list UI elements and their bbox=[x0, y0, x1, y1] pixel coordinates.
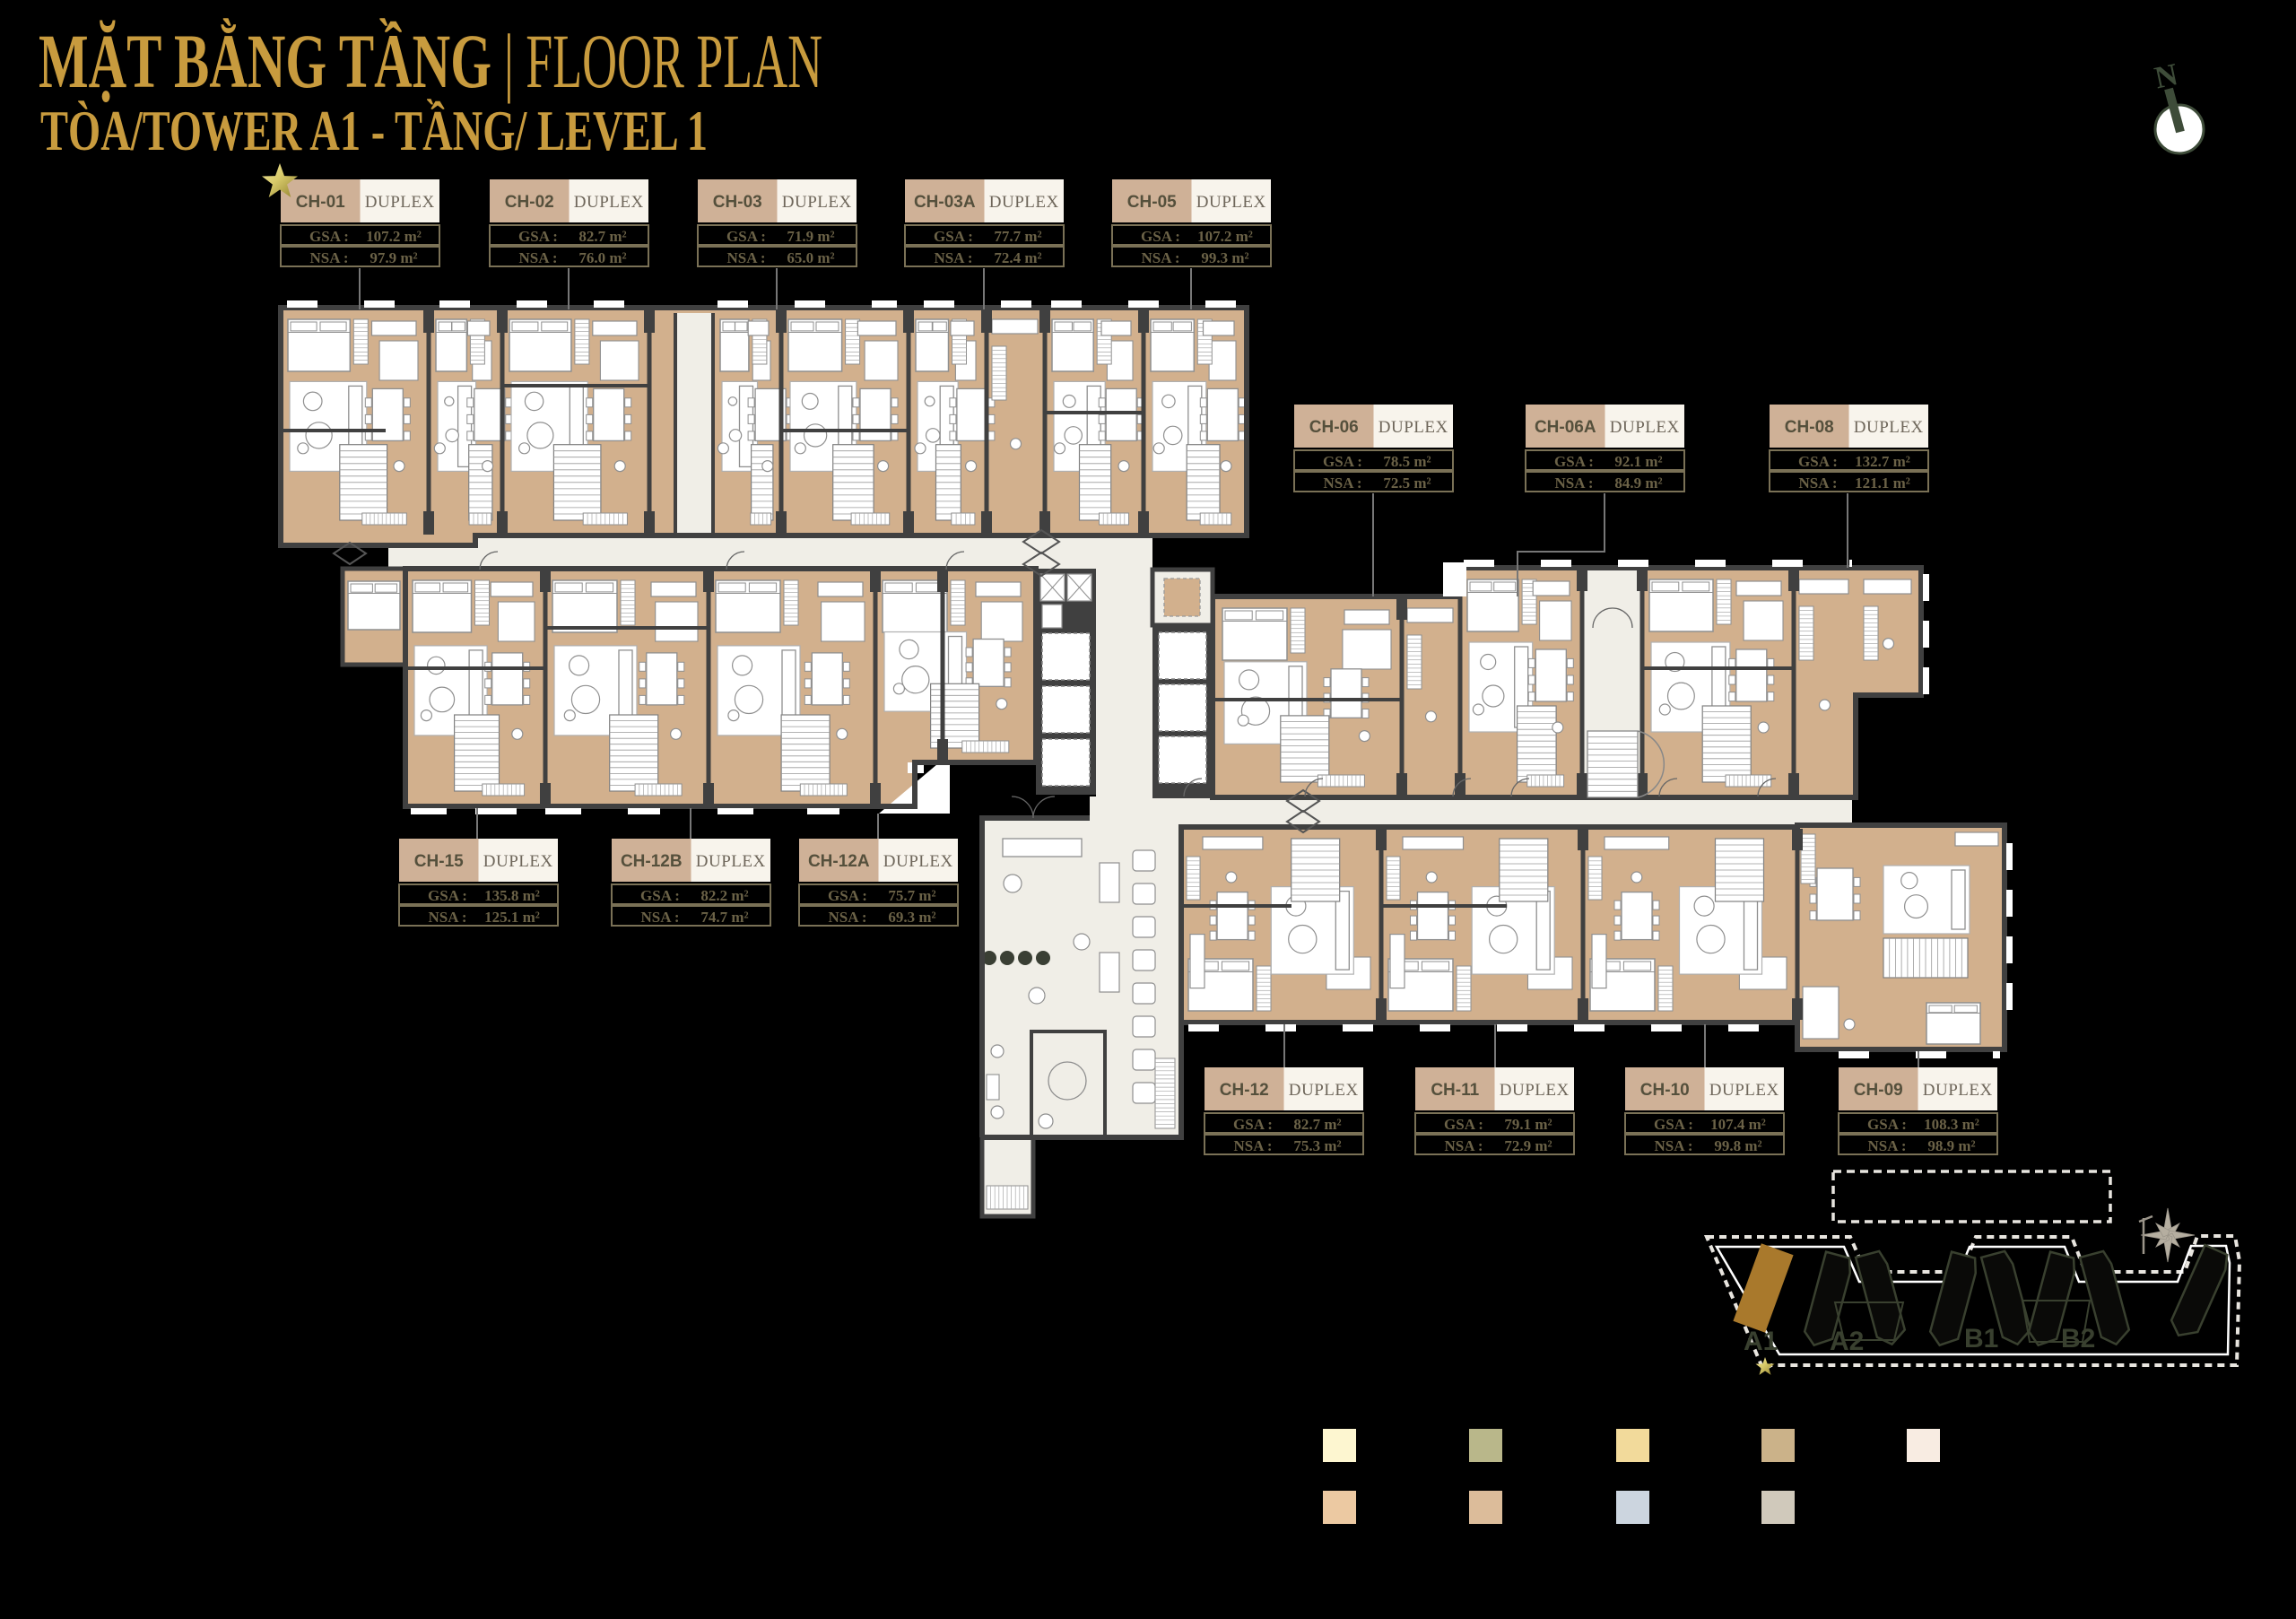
svg-text:82.7 m²: 82.7 m² bbox=[1293, 1116, 1341, 1133]
svg-text:DUPLEX: DUPLEX bbox=[1500, 1081, 1570, 1100]
svg-text:CH-06: CH-06 bbox=[1309, 418, 1359, 437]
svg-text:72.4 m²: 72.4 m² bbox=[994, 249, 1041, 266]
svg-text:NSA :: NSA : bbox=[1324, 474, 1362, 492]
svg-text:84.9 m²: 84.9 m² bbox=[1614, 474, 1662, 492]
svg-text:99.3 m²: 99.3 m² bbox=[1201, 249, 1248, 266]
svg-text:CH-15: CH-15 bbox=[414, 852, 464, 871]
svg-text:107.2 m²: 107.2 m² bbox=[1197, 228, 1253, 245]
svg-text:GSA :: GSA : bbox=[1141, 228, 1180, 245]
svg-text:GSA :: GSA : bbox=[934, 228, 973, 245]
svg-text:CH-03: CH-03 bbox=[713, 193, 762, 212]
svg-text:135.8 m²: 135.8 m² bbox=[484, 887, 540, 904]
svg-text:DUPLEX: DUPLEX bbox=[365, 193, 435, 212]
svg-text:GSA :: GSA : bbox=[1798, 453, 1838, 470]
svg-text:132.7 m²: 132.7 m² bbox=[1855, 453, 1910, 470]
svg-text:GSA :: GSA : bbox=[1323, 453, 1362, 470]
svg-text:DUPLEX: DUPLEX bbox=[1610, 418, 1680, 437]
svg-text:78.5 m²: 78.5 m² bbox=[1383, 453, 1431, 470]
svg-text:NSA :: NSA : bbox=[1555, 474, 1594, 492]
svg-text:82.7 m²: 82.7 m² bbox=[578, 228, 626, 245]
svg-text:77.7 m²: 77.7 m² bbox=[994, 228, 1041, 245]
svg-text:GSA :: GSA : bbox=[828, 887, 867, 904]
svg-text:| FLOOR PLAN: | FLOOR PLAN bbox=[504, 18, 822, 104]
svg-text:GSA :: GSA : bbox=[1867, 1116, 1907, 1133]
svg-text:CH-01: CH-01 bbox=[296, 193, 345, 212]
svg-text:125.1 m²: 125.1 m² bbox=[484, 909, 540, 926]
svg-text:69.3 m²: 69.3 m² bbox=[888, 909, 935, 926]
svg-text:DUPLEX: DUPLEX bbox=[696, 852, 766, 871]
svg-text:121.1 m²: 121.1 m² bbox=[1855, 474, 1910, 492]
svg-text:82.2 m²: 82.2 m² bbox=[700, 887, 748, 904]
svg-text:99.8 m²: 99.8 m² bbox=[1714, 1137, 1761, 1154]
svg-text:GSA :: GSA : bbox=[428, 887, 467, 904]
svg-text:NSA :: NSA : bbox=[1445, 1137, 1483, 1154]
svg-text:CH-06A: CH-06A bbox=[1535, 418, 1596, 437]
svg-text:72.5 m²: 72.5 m² bbox=[1383, 474, 1431, 492]
svg-text:74.7 m²: 74.7 m² bbox=[700, 909, 748, 926]
svg-text:97.9 m²: 97.9 m² bbox=[370, 249, 417, 266]
svg-text:DUPLEX: DUPLEX bbox=[1854, 418, 1924, 437]
svg-text:NSA :: NSA : bbox=[1234, 1137, 1273, 1154]
svg-text:GSA :: GSA : bbox=[1444, 1116, 1483, 1133]
svg-text:CH-05: CH-05 bbox=[1127, 193, 1177, 212]
svg-text:65.0 m²: 65.0 m² bbox=[787, 249, 834, 266]
svg-text:NSA :: NSA : bbox=[310, 249, 349, 266]
svg-text:76.0 m²: 76.0 m² bbox=[578, 249, 626, 266]
svg-text:107.4 m²: 107.4 m² bbox=[1710, 1116, 1766, 1133]
svg-text:NSA :: NSA : bbox=[1799, 474, 1838, 492]
svg-text:NSA :: NSA : bbox=[429, 909, 467, 926]
svg-text:NSA :: NSA : bbox=[519, 249, 558, 266]
svg-text:CH-12A: CH-12A bbox=[808, 852, 870, 871]
svg-text:GSA :: GSA : bbox=[1654, 1116, 1693, 1133]
svg-text:75.3 m²: 75.3 m² bbox=[1293, 1137, 1341, 1154]
svg-text:MẶT BẰNG TẦNG: MẶT BẰNG TẦNG bbox=[39, 18, 491, 104]
svg-text:TÒA/TOWER A1 - TẦNG/ LEVEL 1: TÒA/TOWER A1 - TẦNG/ LEVEL 1 bbox=[40, 99, 708, 162]
svg-text:79.1 m²: 79.1 m² bbox=[1504, 1116, 1552, 1133]
svg-text:DUPLEX: DUPLEX bbox=[1196, 193, 1266, 212]
svg-text:GSA :: GSA : bbox=[640, 887, 680, 904]
svg-text:B2: B2 bbox=[2061, 1324, 2095, 1354]
svg-text:108.3 m²: 108.3 m² bbox=[1924, 1116, 1979, 1133]
svg-text:NSA :: NSA : bbox=[1868, 1137, 1907, 1154]
svg-text:DUPLEX: DUPLEX bbox=[1709, 1081, 1779, 1100]
svg-text:CH-03A: CH-03A bbox=[914, 193, 976, 212]
svg-text:NSA :: NSA : bbox=[727, 249, 766, 266]
svg-text:72.9 m²: 72.9 m² bbox=[1504, 1137, 1552, 1154]
svg-text:NSA :: NSA : bbox=[829, 909, 867, 926]
svg-text:NSA :: NSA : bbox=[641, 909, 680, 926]
svg-text:DUPLEX: DUPLEX bbox=[883, 852, 953, 871]
svg-text:CH-09: CH-09 bbox=[1854, 1081, 1903, 1100]
svg-text:DUPLEX: DUPLEX bbox=[483, 852, 553, 871]
svg-text:75.7 m²: 75.7 m² bbox=[888, 887, 935, 904]
svg-text:A2: A2 bbox=[1830, 1327, 1864, 1356]
svg-text:GSA :: GSA : bbox=[1233, 1116, 1273, 1133]
svg-text:71.9 m²: 71.9 m² bbox=[787, 228, 834, 245]
svg-text:CH-08: CH-08 bbox=[1785, 418, 1834, 437]
svg-text:GSA :: GSA : bbox=[518, 228, 558, 245]
svg-text:GSA :: GSA : bbox=[726, 228, 766, 245]
svg-text:GSA :: GSA : bbox=[309, 228, 349, 245]
svg-text:DUPLEX: DUPLEX bbox=[782, 193, 852, 212]
svg-text:DUPLEX: DUPLEX bbox=[1289, 1081, 1359, 1100]
svg-text:DUPLEX: DUPLEX bbox=[574, 193, 644, 212]
svg-text:CH-12B: CH-12B bbox=[621, 852, 683, 871]
svg-text:98.9 m²: 98.9 m² bbox=[1927, 1137, 1975, 1154]
svg-text:CH-10: CH-10 bbox=[1640, 1081, 1690, 1100]
svg-text:DUPLEX: DUPLEX bbox=[989, 193, 1059, 212]
svg-text:107.2 m²: 107.2 m² bbox=[366, 228, 422, 245]
svg-text:DUPLEX: DUPLEX bbox=[1923, 1081, 1993, 1100]
svg-text:NSA :: NSA : bbox=[1142, 249, 1180, 266]
svg-text:NSA :: NSA : bbox=[935, 249, 973, 266]
svg-text:A1: A1 bbox=[1744, 1327, 1778, 1356]
svg-text:92.1 m²: 92.1 m² bbox=[1614, 453, 1662, 470]
svg-text:CH-11: CH-11 bbox=[1431, 1081, 1479, 1100]
svg-text:B1: B1 bbox=[1964, 1324, 1998, 1354]
svg-text:NSA :: NSA : bbox=[1655, 1137, 1693, 1154]
svg-text:CH-12: CH-12 bbox=[1220, 1081, 1269, 1100]
svg-text:CH-02: CH-02 bbox=[505, 193, 554, 212]
svg-text:DUPLEX: DUPLEX bbox=[1378, 418, 1448, 437]
svg-text:GSA :: GSA : bbox=[1554, 453, 1594, 470]
